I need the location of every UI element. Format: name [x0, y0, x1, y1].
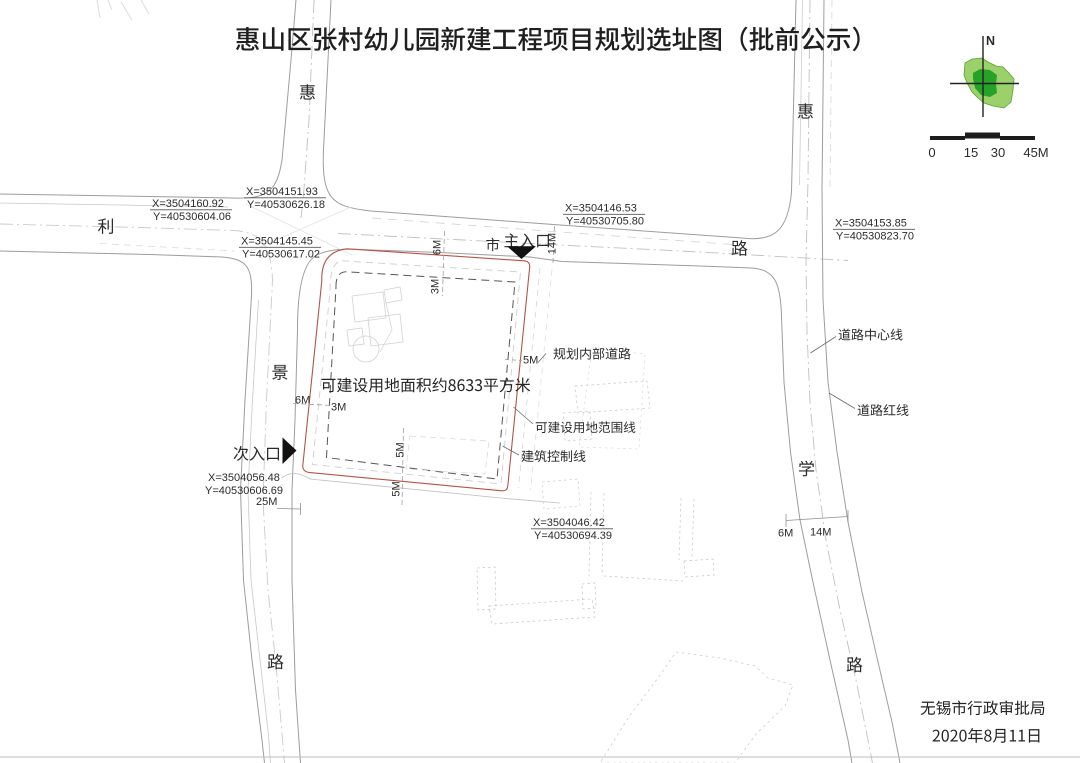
svg-text:X=3504056.48: X=3504056.48	[208, 472, 280, 484]
svg-text:Y=40530823.70: Y=40530823.70	[836, 231, 914, 243]
svg-text:6M: 6M	[432, 240, 444, 255]
svg-text:X=3504151.93: X=3504151.93	[246, 186, 318, 198]
svg-text:45M: 45M	[1023, 145, 1048, 160]
svg-text:5M: 5M	[391, 481, 403, 496]
svg-text:3M: 3M	[331, 402, 346, 414]
svg-text:6M: 6M	[778, 528, 793, 540]
svg-text:3M: 3M	[430, 279, 442, 294]
svg-text:N: N	[986, 34, 995, 48]
svg-text:X=3504160.92: X=3504160.92	[152, 198, 224, 210]
svg-text:0: 0	[928, 145, 935, 160]
svg-text:Y=40530604.06: Y=40530604.06	[153, 211, 231, 223]
svg-text:Y=40530617.02: Y=40530617.02	[242, 249, 320, 261]
svg-text:Y=40530694.39: Y=40530694.39	[534, 530, 612, 542]
svg-text:15: 15	[964, 145, 978, 160]
svg-text:Y=40530705.80: Y=40530705.80	[566, 216, 644, 228]
svg-text:14M: 14M	[810, 527, 831, 539]
svg-text:X=3504046.42: X=3504046.42	[533, 517, 605, 529]
svg-text:30: 30	[991, 145, 1005, 160]
svg-text:X=3504153.85: X=3504153.85	[835, 218, 907, 230]
svg-text:X=3504145.45: X=3504145.45	[241, 236, 313, 248]
svg-text:5M: 5M	[395, 442, 407, 457]
svg-text:X=3504146.53: X=3504146.53	[565, 203, 637, 215]
svg-text:Y=40530606.69: Y=40530606.69	[205, 485, 283, 497]
svg-text:5M: 5M	[523, 355, 538, 367]
svg-text:25M: 25M	[256, 496, 277, 508]
svg-text:6M: 6M	[295, 395, 310, 407]
svg-text:Y=40530626.18: Y=40530626.18	[247, 199, 325, 211]
